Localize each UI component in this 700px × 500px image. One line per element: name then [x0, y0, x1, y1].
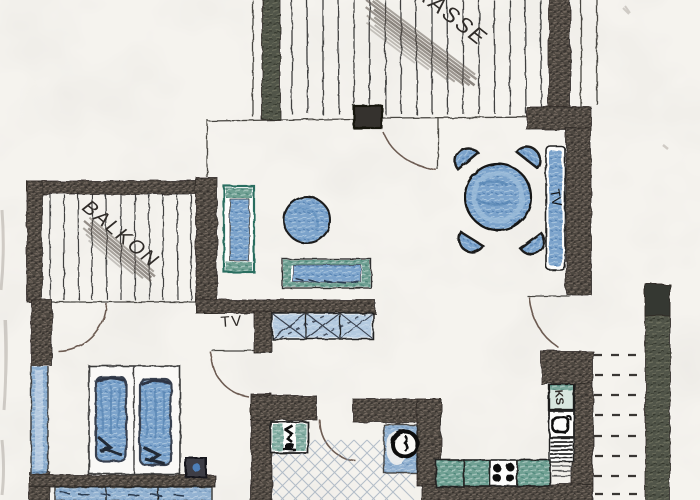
svg-text:TV: TV [220, 312, 243, 331]
svg-text:KS: KS [552, 389, 565, 405]
svg-text:TV: TV [547, 188, 565, 208]
